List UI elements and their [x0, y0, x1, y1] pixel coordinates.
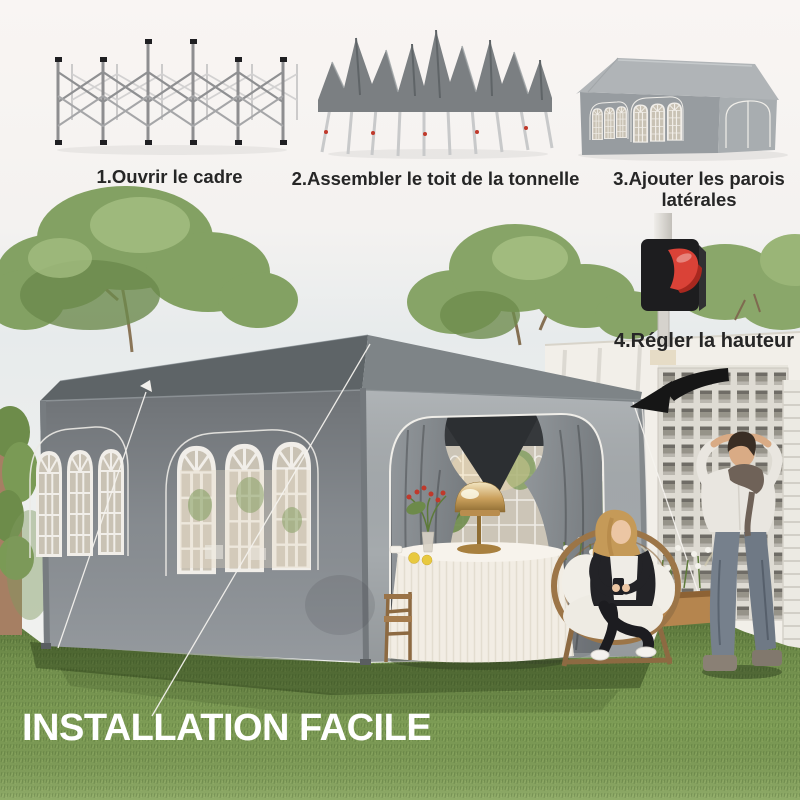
woman-face: [611, 520, 631, 544]
step-3-caption: 3.Ajouter les parois latérales: [598, 169, 800, 210]
step3-figure-mini-gazebo: [576, 58, 788, 161]
step-2-caption: 2.Assembler le toit de la tonnelle: [278, 169, 593, 190]
step-4-caption: 4.Régler la hauteur: [608, 330, 800, 352]
grooved-pillar: [783, 380, 800, 650]
product-infographic: 1.Ouvrir le cadre 2.Assembler le toit de…: [0, 0, 800, 800]
garden-scene-illustration: [0, 0, 800, 800]
headline: INSTALLATION FACILE: [22, 707, 431, 750]
window-panel-b: [166, 430, 318, 576]
step-1-caption: 1.Ouvrir le cadre: [62, 167, 277, 188]
